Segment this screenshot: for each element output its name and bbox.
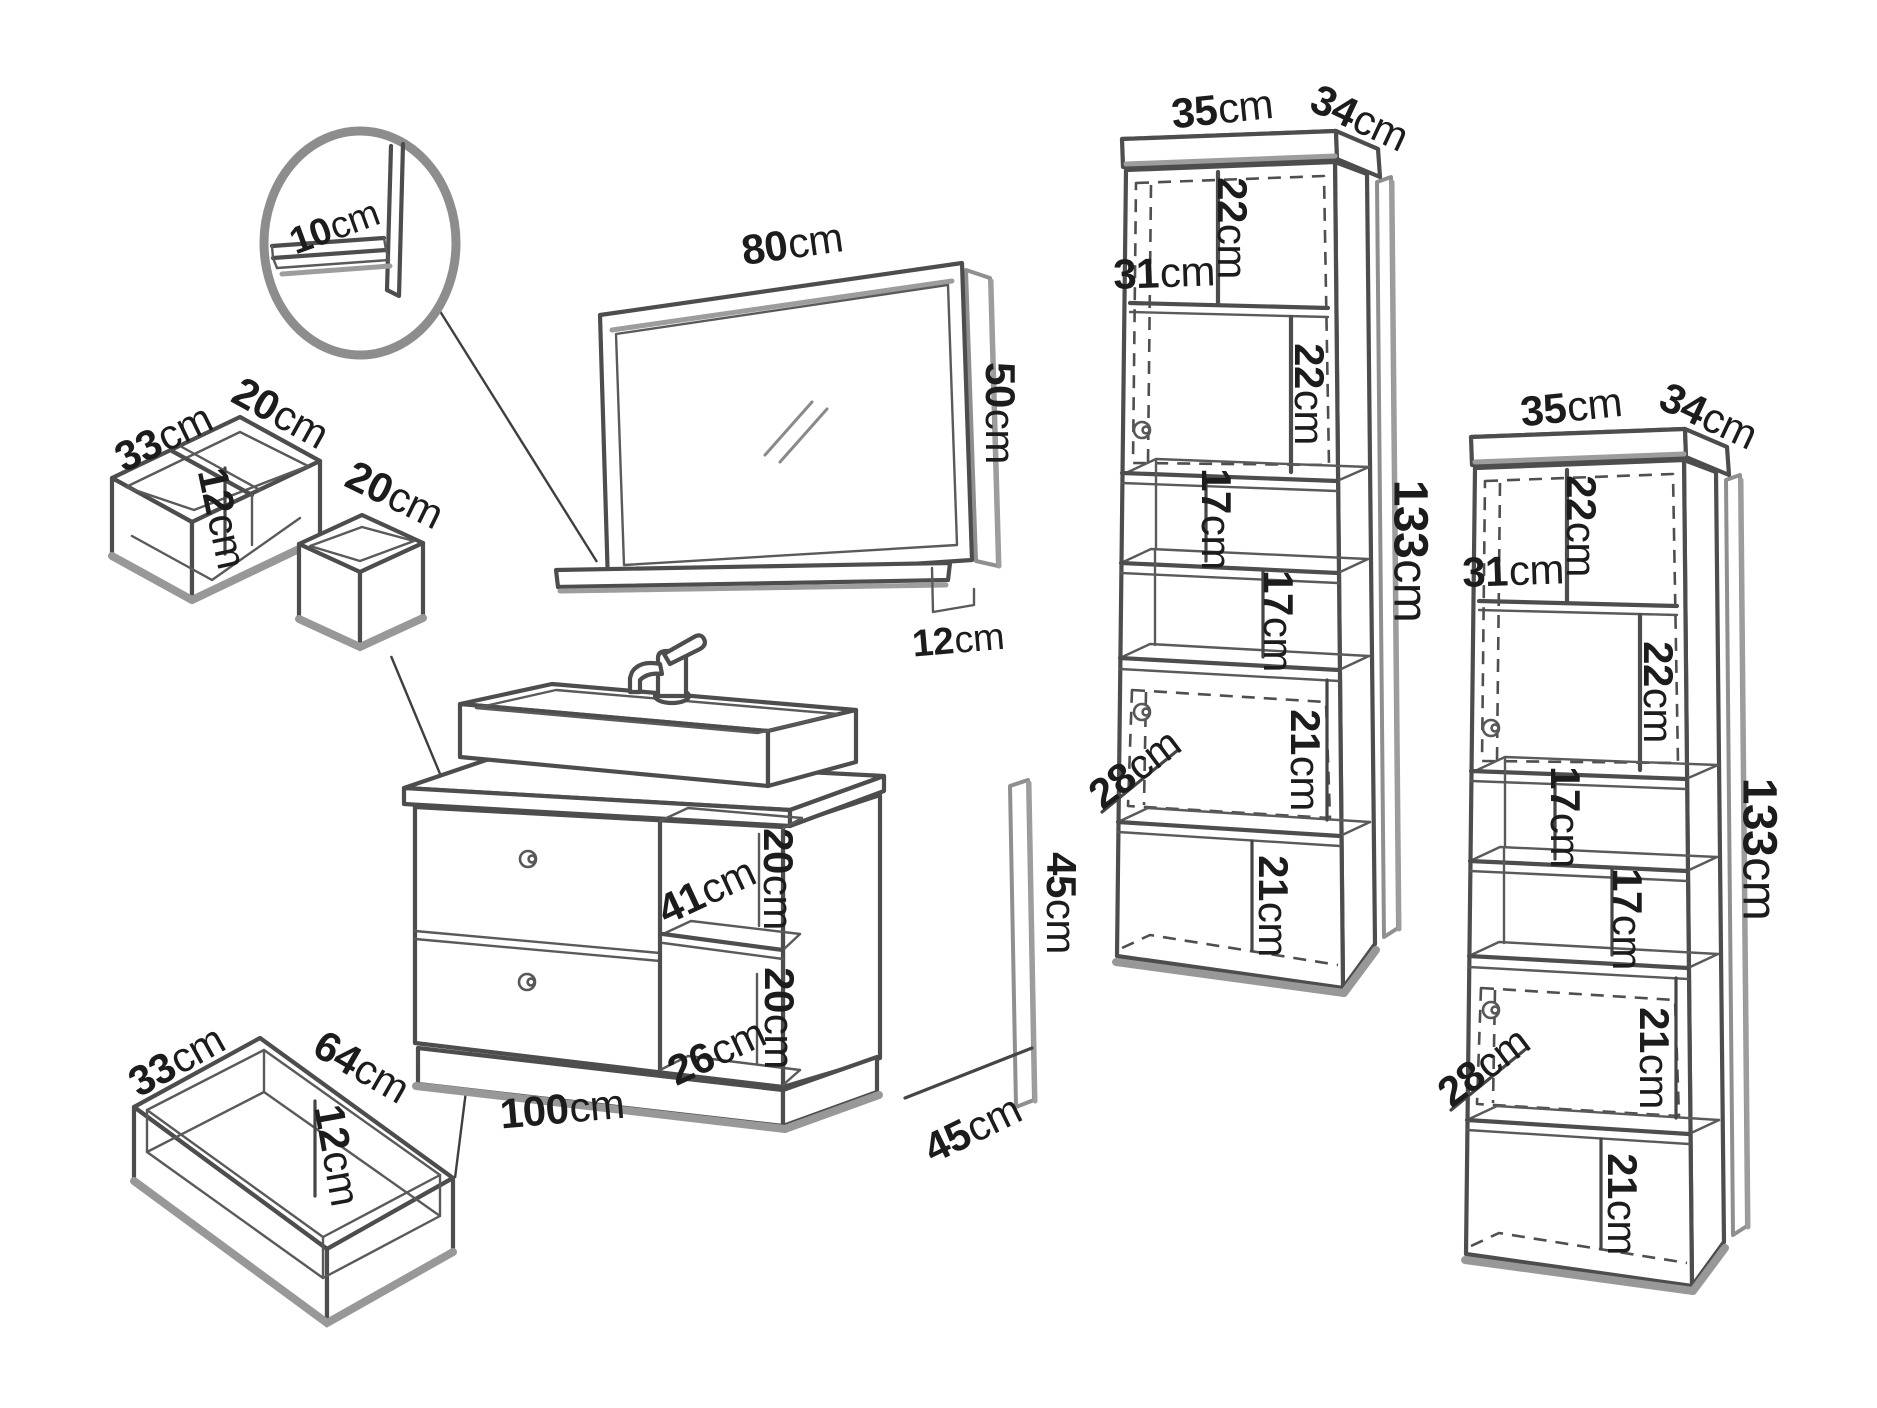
- mirror-height-label: 50cm: [977, 362, 1024, 464]
- vanity-niche-top-height-label: 20cm: [755, 828, 802, 930]
- cabinet2-open-shelf-2-label: 17cm: [1604, 868, 1651, 970]
- cabinet2-height-label: 133cm: [1733, 778, 1786, 921]
- vanity-depth-label: 45cm: [916, 1085, 1028, 1172]
- cabinet2-door-compartment-label: 21cm: [1631, 1007, 1678, 1109]
- cabinet2-top-compartment-label: 22cm: [1558, 475, 1605, 577]
- cabinet1-top-compartment-label: 22cm: [1209, 177, 1256, 279]
- cabinet1-open-shelf-1-label: 17cm: [1193, 468, 1240, 570]
- cabinet1-shelf-width-label: 31cm: [1112, 247, 1215, 298]
- cabinet1-width-label: 35cm: [1169, 80, 1275, 137]
- faucet: [630, 635, 705, 703]
- cabinet1-bottom-compartment-label: 21cm: [1250, 855, 1297, 957]
- tall-cabinet-1: 35cm 34cm 22cm 31cm 22cm 17cm 17cm 21cm: [1080, 75, 1437, 993]
- cabinet2-shelf-width-label: 31cm: [1461, 545, 1564, 596]
- bottom-drawer-box: 33cm 64cm 12cm: [120, 1015, 453, 1323]
- mirror-shelf-depth-label: 12cm: [911, 616, 1006, 666]
- cabinet2-middle-compartment-label: 22cm: [1635, 641, 1682, 743]
- cabinet1-open-shelf-2-label: 17cm: [1255, 570, 1302, 672]
- cabinet2-bottom-compartment-label: 21cm: [1599, 1153, 1646, 1255]
- detail-leader-line: [438, 308, 597, 562]
- vanity-drawer-knob-bottom: [519, 974, 535, 990]
- cabinet1-door-compartment-label: 21cm: [1282, 709, 1329, 811]
- vanity-height-label: 45cm: [1038, 852, 1085, 954]
- vanity-drawer-knob-top: [520, 851, 536, 867]
- cabinet1-middle-compartment-label: 22cm: [1286, 343, 1333, 445]
- drawer-insert: 33cm 20cm 12cm 20cm: [107, 367, 470, 846]
- cabinet1-height-label: 133cm: [1384, 480, 1437, 623]
- bathroom-furniture-dimension-diagram: 10cm 33cm 20cm 12cm 2: [0, 0, 1877, 1408]
- cabinet2-width-label: 35cm: [1518, 378, 1624, 435]
- mirror: 80cm 50cm 12cm: [556, 213, 1024, 665]
- mirror-width-label: 80cm: [738, 213, 845, 274]
- vanity-width-label: 100cm: [498, 1080, 626, 1138]
- vanity-unit: 41cm 20cm 20cm 26cm 100cm 45cm 45cm: [404, 635, 1085, 1178]
- cabinet2-open-shelf-1-label: 17cm: [1542, 766, 1589, 868]
- tall-cabinet-2: 35cm 34cm 22cm 31cm 22cm 17cm 17cm 21cm: [1429, 373, 1786, 1291]
